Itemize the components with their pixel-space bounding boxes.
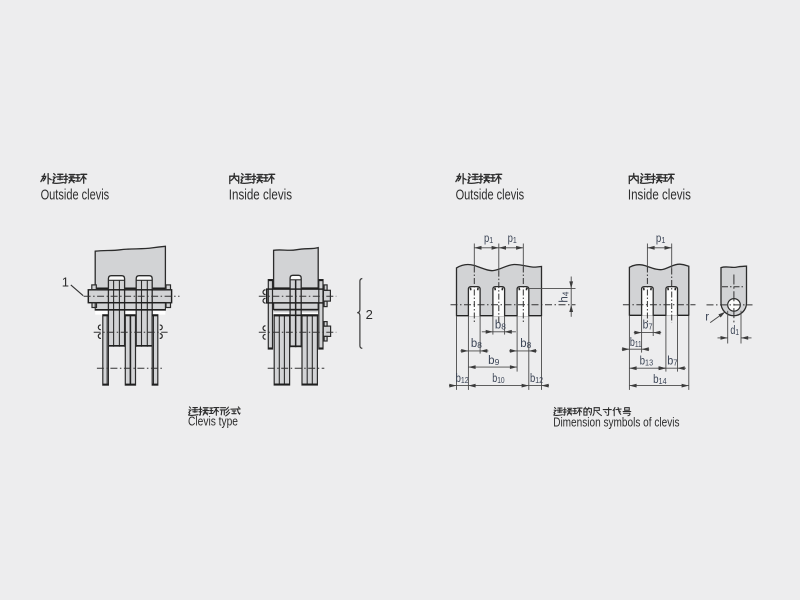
svg-text:r: r xyxy=(705,311,709,323)
svg-text:b11: b11 xyxy=(630,337,642,349)
svg-text:d1: d1 xyxy=(730,325,739,337)
svg-text:b12: b12 xyxy=(530,373,543,385)
svg-text:p1: p1 xyxy=(484,233,493,245)
svg-text:h4: h4 xyxy=(558,291,570,302)
svg-text:Dimension symbols of clevis: Dimension symbols of clevis xyxy=(553,416,679,430)
svg-text:p1: p1 xyxy=(508,233,517,245)
svg-text:Outside clevis: Outside clevis xyxy=(456,187,525,203)
svg-text:Inside clevis: Inside clevis xyxy=(229,187,292,203)
svg-text:b8: b8 xyxy=(495,319,506,331)
svg-text:b7: b7 xyxy=(667,356,678,368)
svg-text:b13: b13 xyxy=(640,356,654,368)
svg-text:b12: b12 xyxy=(456,373,469,385)
svg-text:p1: p1 xyxy=(656,233,666,245)
svg-text:Clevis type: Clevis type xyxy=(188,415,238,429)
svg-text:b10: b10 xyxy=(492,373,505,385)
svg-text:b8: b8 xyxy=(471,338,482,350)
svg-text:b7: b7 xyxy=(643,319,653,331)
svg-text:1: 1 xyxy=(62,274,69,289)
svg-text:Inside clevis: Inside clevis xyxy=(628,187,691,203)
svg-text:b9: b9 xyxy=(488,355,499,367)
svg-text:b8: b8 xyxy=(520,338,531,350)
svg-text:Outside clevis: Outside clevis xyxy=(41,187,110,203)
svg-text:2: 2 xyxy=(366,307,373,322)
svg-text:b14: b14 xyxy=(653,374,667,386)
